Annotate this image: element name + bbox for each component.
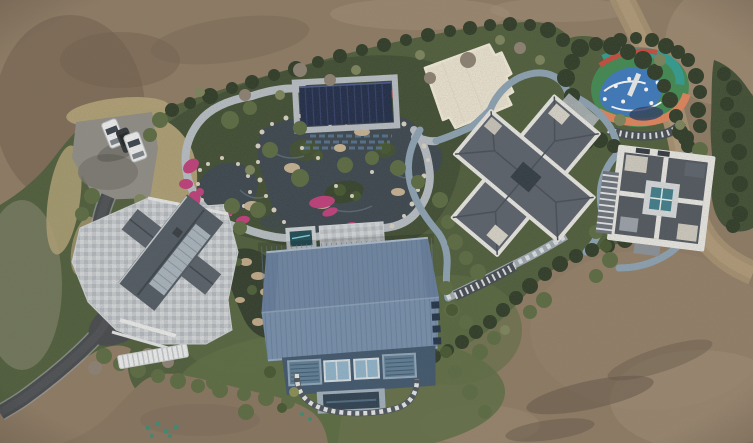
vignette [0,0,753,443]
aerial-photo [0,0,753,443]
